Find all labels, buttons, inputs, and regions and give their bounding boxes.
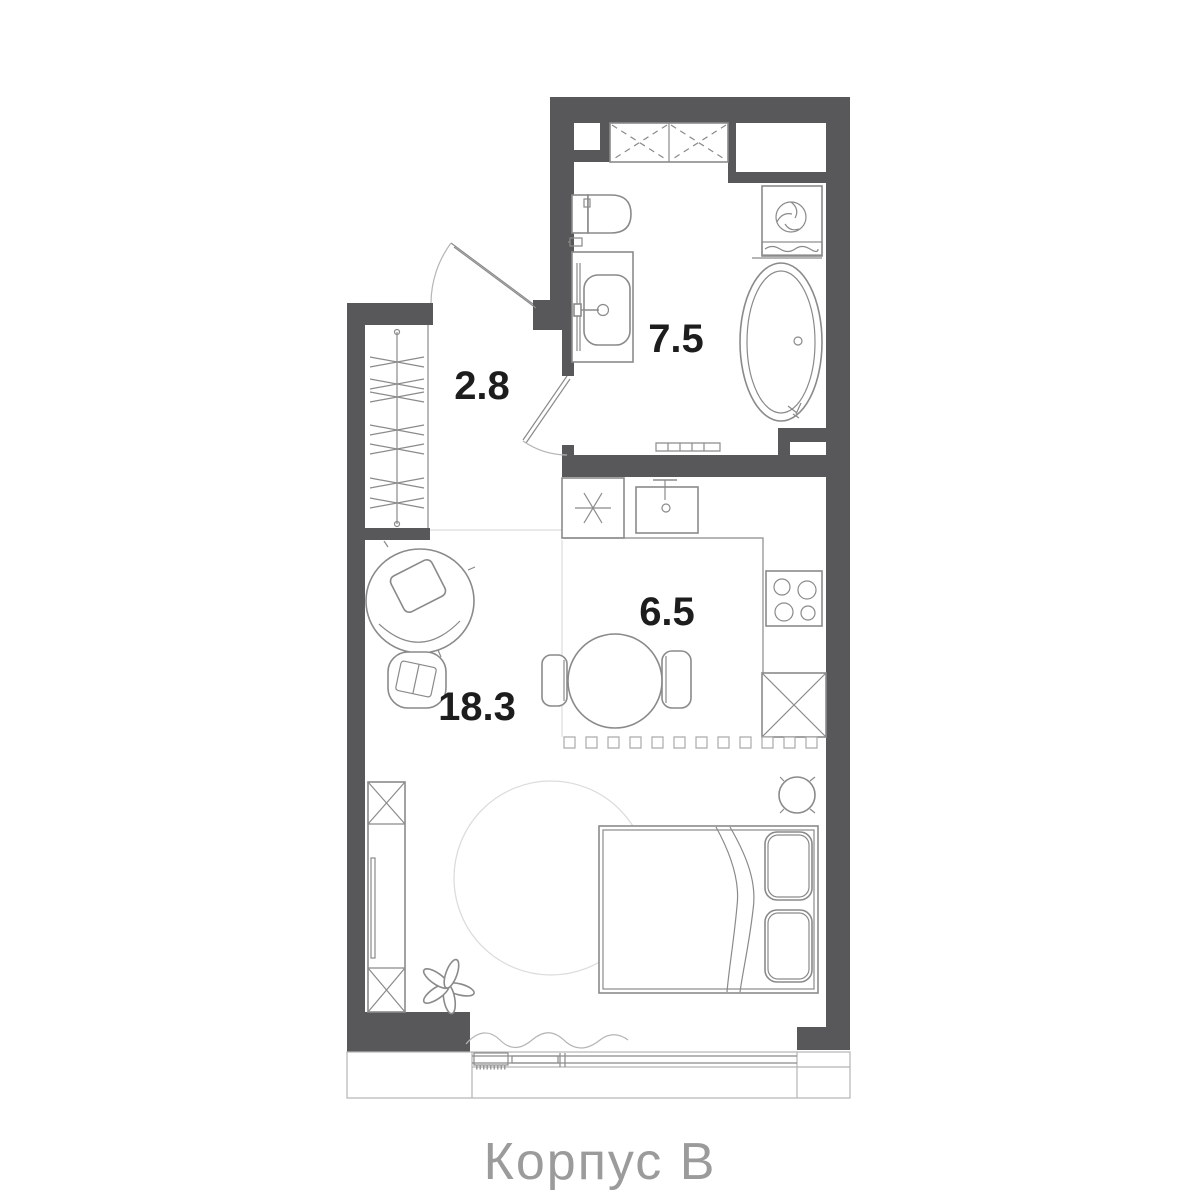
dining-table [568, 634, 662, 728]
kitchen-sink-drain [662, 504, 670, 512]
toilet [568, 195, 631, 246]
wall-left-outer [347, 303, 365, 1012]
wall-tub-nook-side [778, 428, 790, 455]
washing-machine-body [762, 186, 822, 256]
window-jamb-ticks [560, 1053, 565, 1067]
toilet-bowl [588, 195, 631, 233]
floor-plan-drawing: 7.5 2.8 [0, 0, 1200, 1200]
floor-plan-page: 7.5 2.8 [0, 0, 1200, 1200]
wall-bathroom-left-upper [550, 97, 574, 330]
nightstand [779, 777, 815, 813]
toilet-tank [572, 195, 588, 233]
pillow-bottom [765, 910, 812, 982]
bathtub [740, 263, 822, 421]
fridge [562, 478, 624, 538]
room-area-label-living-room: 18.3 [438, 685, 516, 729]
hob-burner-4 [801, 606, 815, 620]
plant [421, 958, 476, 1015]
wall-niche-stub [600, 123, 610, 162]
towel-rail [656, 443, 720, 451]
paper-holder [568, 238, 582, 246]
tall-cabinet-outline [368, 782, 405, 1012]
hallway: 2.8 [370, 243, 562, 530]
kitchen: 6.5 [542, 478, 826, 748]
wall-bathroom-top [550, 97, 850, 123]
wall-niche-bottom [572, 150, 604, 162]
bathroom-door-swing-arc [523, 441, 567, 455]
washing-machine [752, 186, 822, 258]
bathroom-door-leaf [523, 376, 570, 443]
room-area-label-bathroom: 7.5 [648, 317, 704, 361]
sink-vanity [572, 252, 633, 362]
room-area-label-hallway: 2.8 [454, 364, 510, 408]
entrance-door [431, 243, 536, 308]
armchair [366, 541, 475, 657]
tall-cabinet [368, 782, 405, 1012]
wall-bathroom-bottom [562, 455, 850, 477]
curtain-wave [466, 1033, 628, 1048]
bed [599, 826, 818, 993]
base-cabinet [762, 673, 826, 737]
hob [766, 571, 822, 626]
chair-left [542, 655, 567, 706]
radiator-right [512, 1056, 558, 1063]
wall-right-outer [826, 97, 850, 1050]
entrance-door-swing-arc [431, 243, 451, 303]
window-apron-dividers [472, 1052, 850, 1098]
towel-rail-bar [656, 443, 720, 451]
entrance-door-leaf [451, 243, 536, 308]
sliding-partition-track [564, 737, 817, 748]
bathtub-outer [740, 263, 822, 421]
window-apron [347, 1052, 850, 1098]
hob-burner-2 [798, 581, 816, 599]
wardrobe [370, 325, 428, 528]
base-cabinet-x-mark [762, 673, 826, 737]
wall-shaft-bottom [728, 172, 826, 183]
nightstand-top [779, 777, 815, 813]
kitchen-sink-bowl [636, 487, 698, 533]
overhead-cabinets [610, 123, 728, 162]
building-caption: Корпус В [0, 1132, 1200, 1192]
kitchen-sink [636, 480, 698, 533]
dining-set [542, 634, 691, 728]
hob-burner-3 [775, 603, 793, 621]
pillow-top [765, 832, 812, 900]
window-glazing-lines [472, 1056, 797, 1063]
bathroom-door [523, 376, 570, 455]
room-area-label-kitchen: 6.5 [639, 590, 695, 634]
wall-bottom-left-block [347, 1012, 470, 1052]
wall-wardrobe-bottom [347, 528, 430, 540]
wall-bottom-right-block [797, 1027, 850, 1050]
hob-burner-1 [774, 579, 790, 595]
wall-entry-stub [533, 300, 563, 330]
faucet-base [574, 304, 581, 316]
